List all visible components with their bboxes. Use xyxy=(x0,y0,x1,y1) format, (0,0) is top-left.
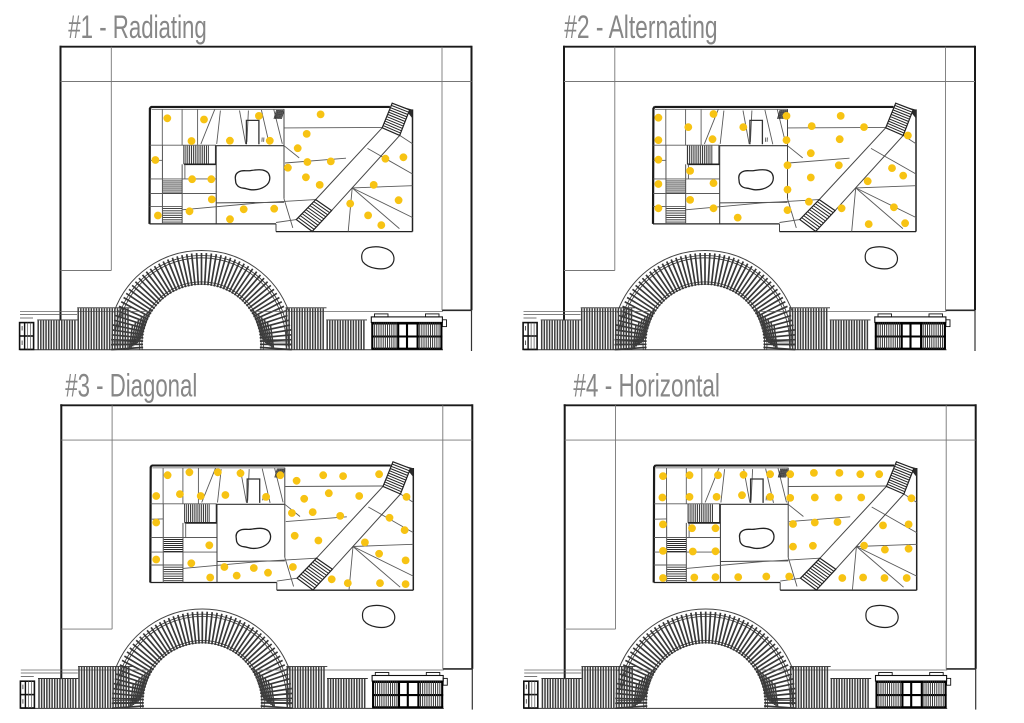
svg-text:#3 - Diagonal: #3 - Diagonal xyxy=(65,367,197,403)
svg-text:#2 - Alternating: #2 - Alternating xyxy=(564,9,717,45)
svg-text:#4 - Horizontal: #4 - Horizontal xyxy=(573,368,720,404)
svg-text:#1 - Radiating: #1 - Radiating xyxy=(68,9,207,45)
